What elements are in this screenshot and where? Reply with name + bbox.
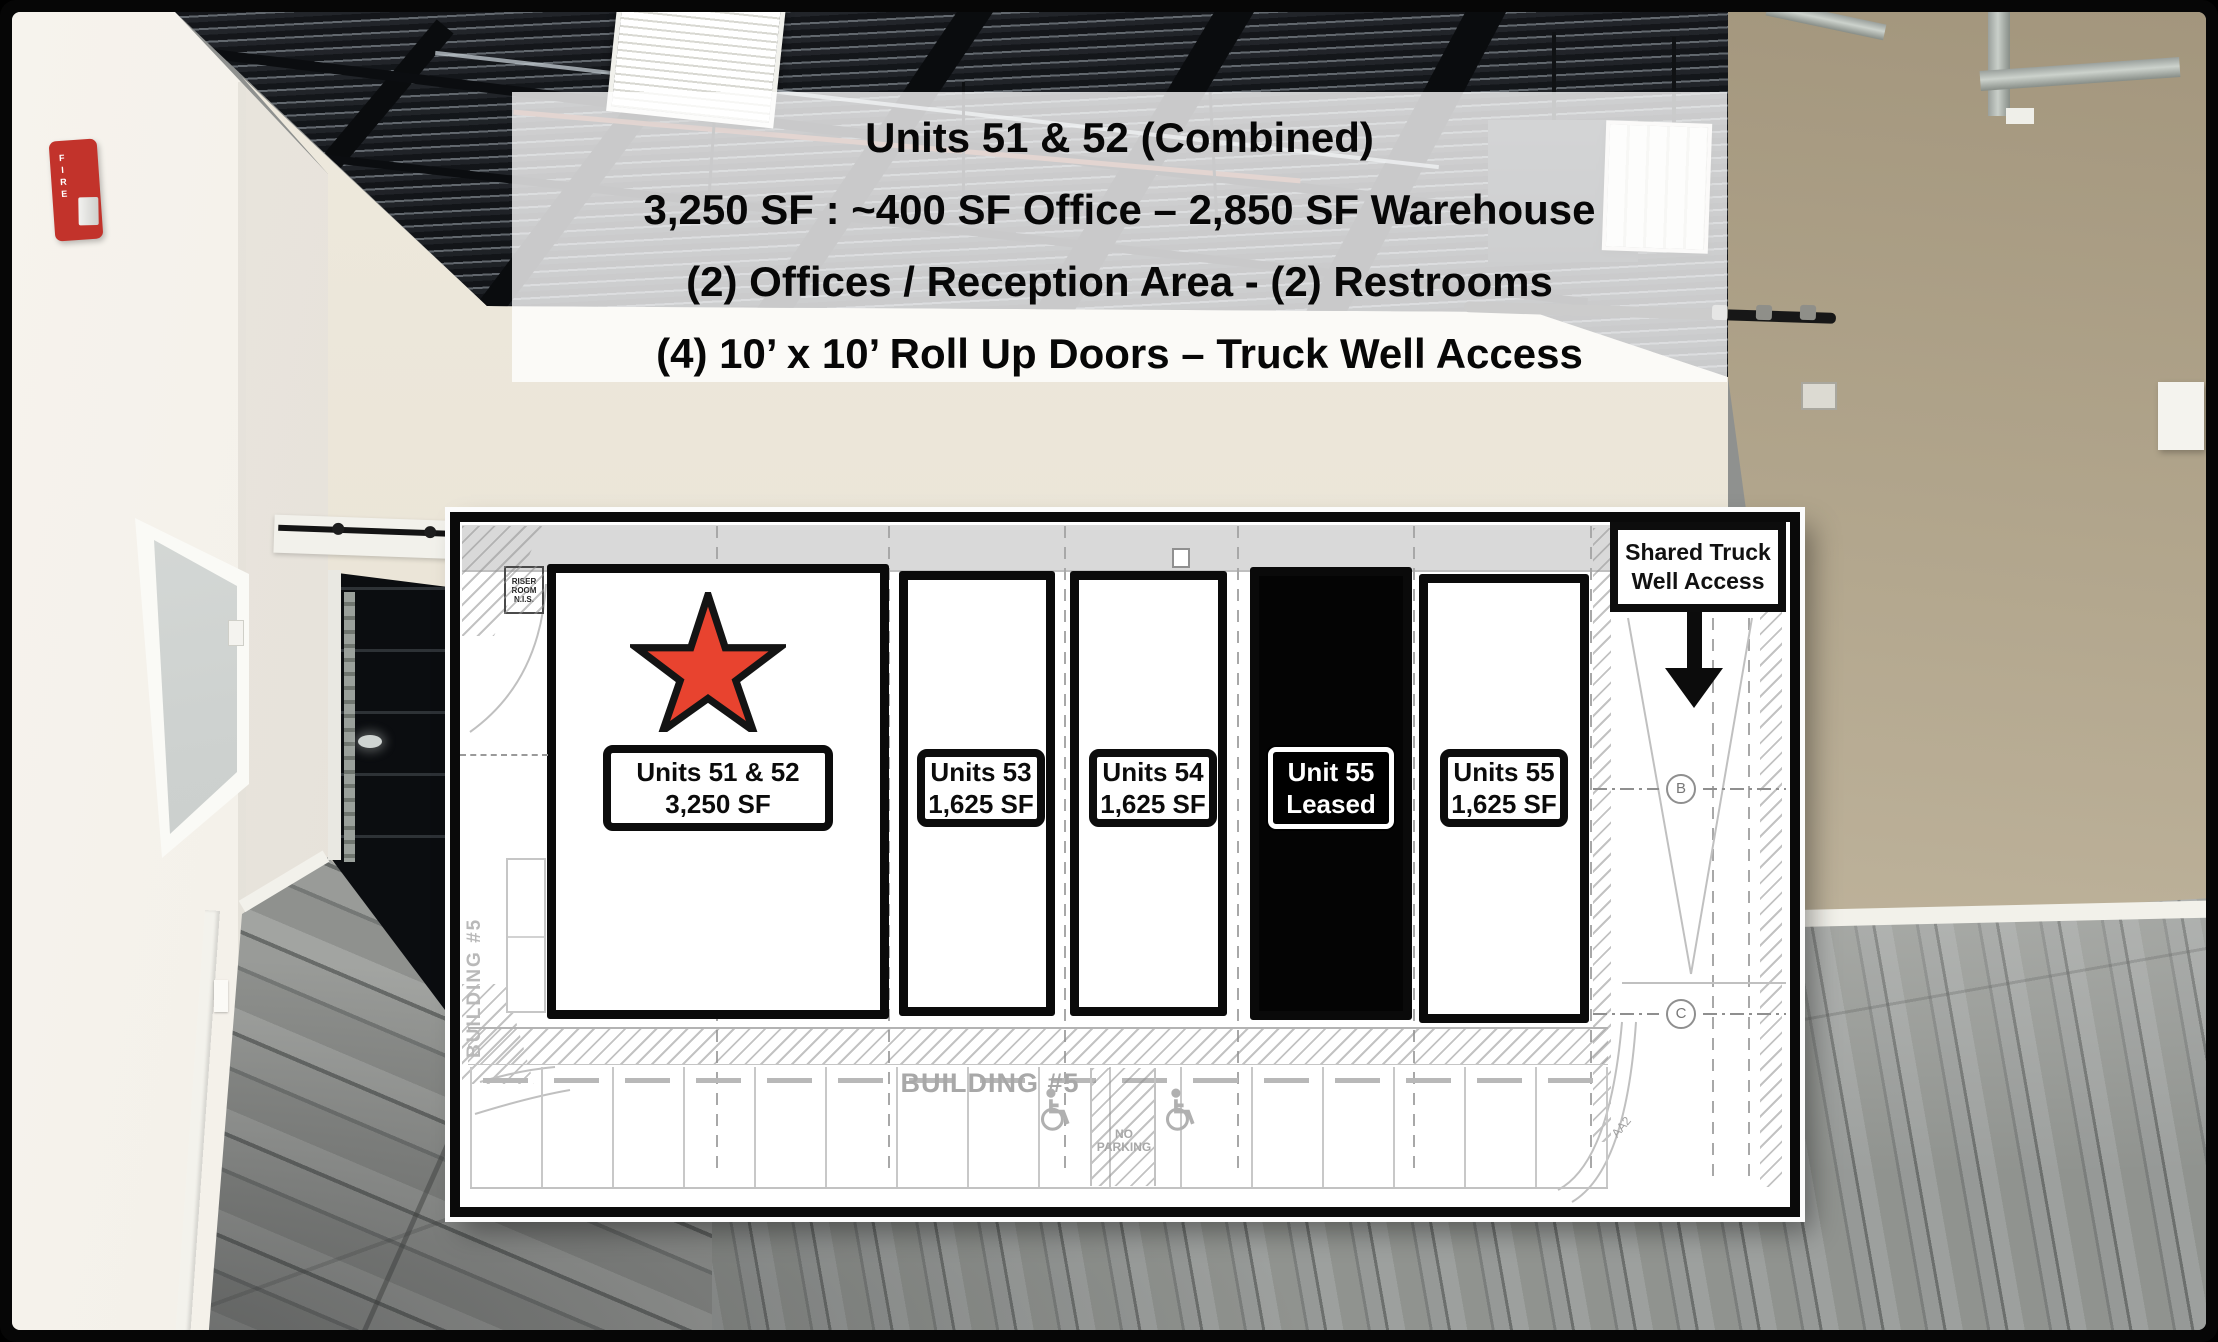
- unit-55-label: Units 55 1,625 SF: [1440, 749, 1568, 827]
- handicap-icon: [1035, 1087, 1073, 1133]
- barn-door-track: [273, 515, 466, 560]
- unit-53-size: 1,625 SF: [927, 788, 1035, 820]
- unit-53-name: Units 53: [927, 756, 1035, 788]
- planter-boxes: [506, 858, 546, 1013]
- flyer-image: FIRE Units 51 & 52 (Combined) 3,250 SF :…: [0, 0, 2218, 1342]
- headline-line-2: 3,250 SF : ~400 SF Office – 2,850 SF War…: [512, 174, 1727, 246]
- unit-51-52-name: Units 51 & 52: [613, 756, 823, 788]
- strut-clip: [2006, 108, 2034, 124]
- pipe-wrap: [1756, 305, 1772, 320]
- highlight-star-icon: [630, 592, 786, 732]
- truck-well-arrow-icon: [1665, 668, 1723, 708]
- pipe-wrap: [1800, 305, 1816, 320]
- truck-well-note: Shared Truck Well Access: [1610, 522, 1786, 612]
- riser-room-box: RISER ROOM N.I.S.: [504, 566, 544, 614]
- unit-55-leased-label: Unit 55 Leased: [1268, 747, 1394, 829]
- strobe-lens: [78, 197, 98, 225]
- electrical-panel: [2158, 382, 2204, 450]
- headline-line-1: Units 51 & 52 (Combined): [512, 102, 1727, 174]
- truck-well-note-line2: Well Access: [1618, 567, 1778, 596]
- track-roller: [332, 523, 344, 535]
- unit-54-size: 1,625 SF: [1099, 788, 1207, 820]
- warehouse-photo: FIRE Units 51 & 52 (Combined) 3,250 SF :…: [12, 12, 2206, 1330]
- track-roller: [424, 526, 436, 538]
- dimension-line: [460, 754, 548, 756]
- truck-well-note-line1: Shared Truck: [1618, 538, 1778, 567]
- door-light-leak: [358, 735, 382, 748]
- floor-plan-overlay: Units 51 & 52 3,250 SF Units 53 1,625 SF…: [450, 512, 1800, 1217]
- handicap-icon: [1160, 1087, 1198, 1133]
- wall-outlet: [214, 980, 228, 1012]
- light-switch: [228, 620, 244, 646]
- building-label-side: BUILDING #5: [464, 818, 488, 1058]
- unit-54-label: Units 54 1,625 SF: [1089, 749, 1217, 827]
- truck-well-arrow-shaft: [1687, 612, 1702, 670]
- door-jamb: [328, 570, 341, 860]
- no-parking-label: NO PARKING: [1096, 1128, 1152, 1154]
- sidewalk-hatch-band: [468, 1027, 1608, 1065]
- thermostat: [1801, 382, 1837, 410]
- unit-53-label: Units 53 1,625 SF: [917, 749, 1045, 827]
- riser-room-label: RISER ROOM N.I.S.: [506, 577, 542, 604]
- unit-51-52-label: Units 51 & 52 3,250 SF: [603, 745, 833, 831]
- unit-55-leased-name: Unit 55: [1275, 756, 1387, 788]
- fire-alarm-strobe: FIRE: [49, 138, 104, 241]
- unit-55-name: Units 55: [1450, 756, 1558, 788]
- fire-alarm-label: FIRE: [56, 153, 69, 202]
- headline-line-4: (4) 10’ x 10’ Roll Up Doors – Truck Well…: [512, 318, 1727, 390]
- rollup-door-track: [344, 592, 355, 862]
- grid-bubble-b: B: [1666, 774, 1696, 804]
- headline-line-3: (2) Offices / Reception Area - (2) Restr…: [512, 246, 1727, 318]
- strut-channel-vertical: [1988, 12, 2010, 116]
- door-mark: [1172, 548, 1190, 568]
- unit-54-name: Units 54: [1099, 756, 1207, 788]
- unit-51-52-size: 3,250 SF: [613, 788, 823, 820]
- headline-overlay: Units 51 & 52 (Combined) 3,250 SF : ~400…: [512, 92, 1727, 382]
- building-label: BUILDING #5: [810, 1068, 1170, 1099]
- grid-bubble-c: C: [1666, 999, 1696, 1029]
- unit-55-leased-status: Leased: [1275, 788, 1387, 820]
- unit-55-size: 1,625 SF: [1450, 788, 1558, 820]
